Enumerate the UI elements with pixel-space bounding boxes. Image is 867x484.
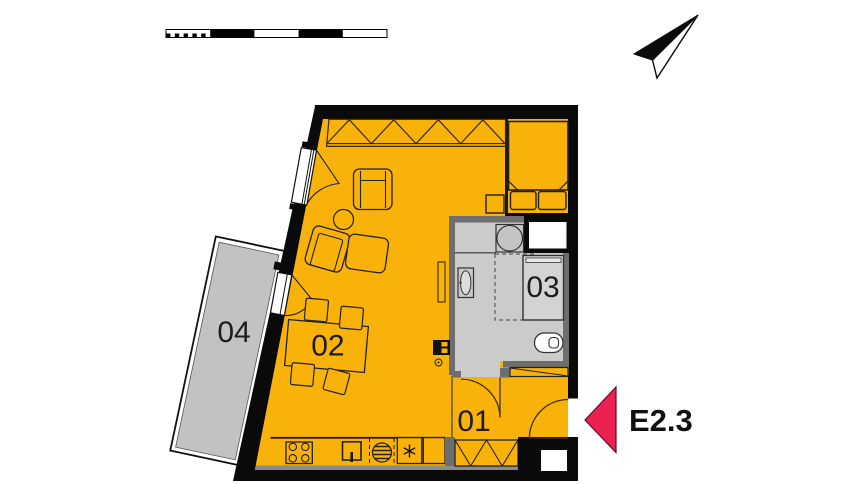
svg-text:01: 01: [457, 405, 490, 438]
svg-text:04: 04: [217, 316, 250, 349]
svg-text:E2.3: E2.3: [629, 403, 693, 438]
svg-text:02: 02: [311, 330, 344, 363]
svg-text:03: 03: [526, 271, 559, 304]
